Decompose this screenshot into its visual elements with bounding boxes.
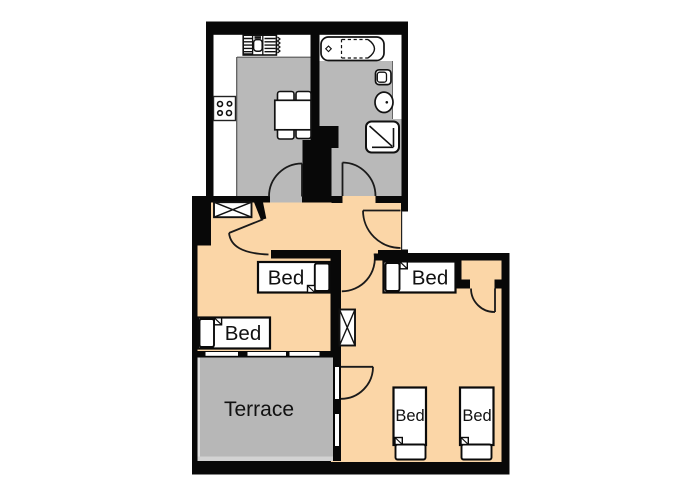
svg-text:Bed: Bed	[268, 267, 304, 290]
svg-text:Bed: Bed	[412, 267, 448, 290]
svg-text:Bed: Bed	[462, 407, 491, 425]
svg-text:Bed: Bed	[225, 322, 261, 345]
svg-text:Bed: Bed	[395, 407, 424, 425]
svg-text:Terrace: Terrace	[224, 398, 294, 421]
